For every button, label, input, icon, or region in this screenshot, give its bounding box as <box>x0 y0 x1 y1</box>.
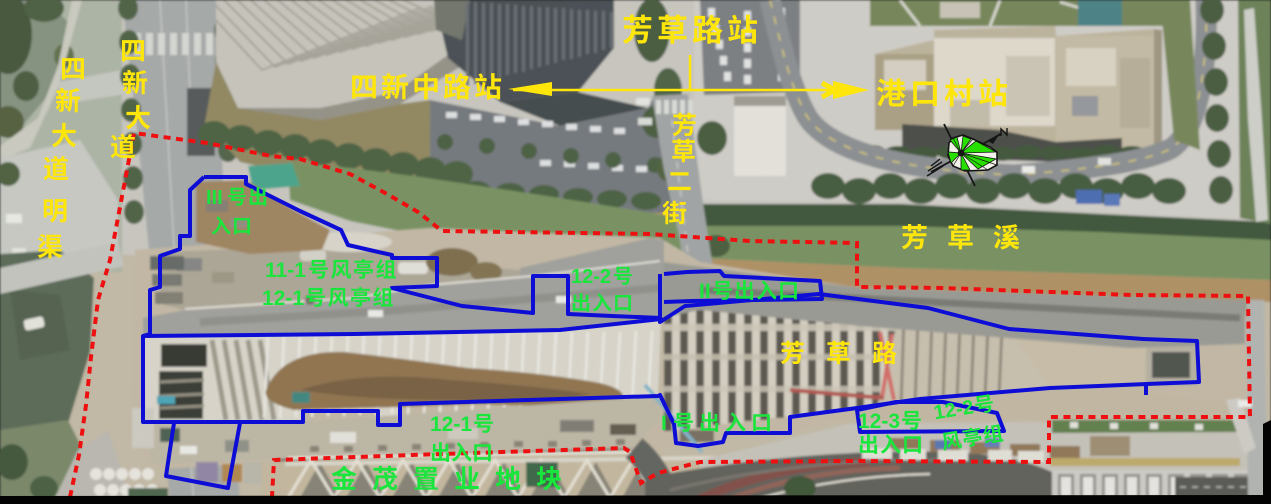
svg-text:11-1: 11-1 <box>265 259 306 282</box>
svg-text:III: III <box>206 187 223 209</box>
svg-text:12-1: 12-1 <box>262 287 304 310</box>
svg-text:12-2: 12-2 <box>571 266 611 288</box>
svg-text:12-3: 12-3 <box>858 410 900 433</box>
svg-text:12-1: 12-1 <box>430 413 472 436</box>
svg-text:II: II <box>699 280 711 303</box>
svg-text:I: I <box>661 412 667 435</box>
